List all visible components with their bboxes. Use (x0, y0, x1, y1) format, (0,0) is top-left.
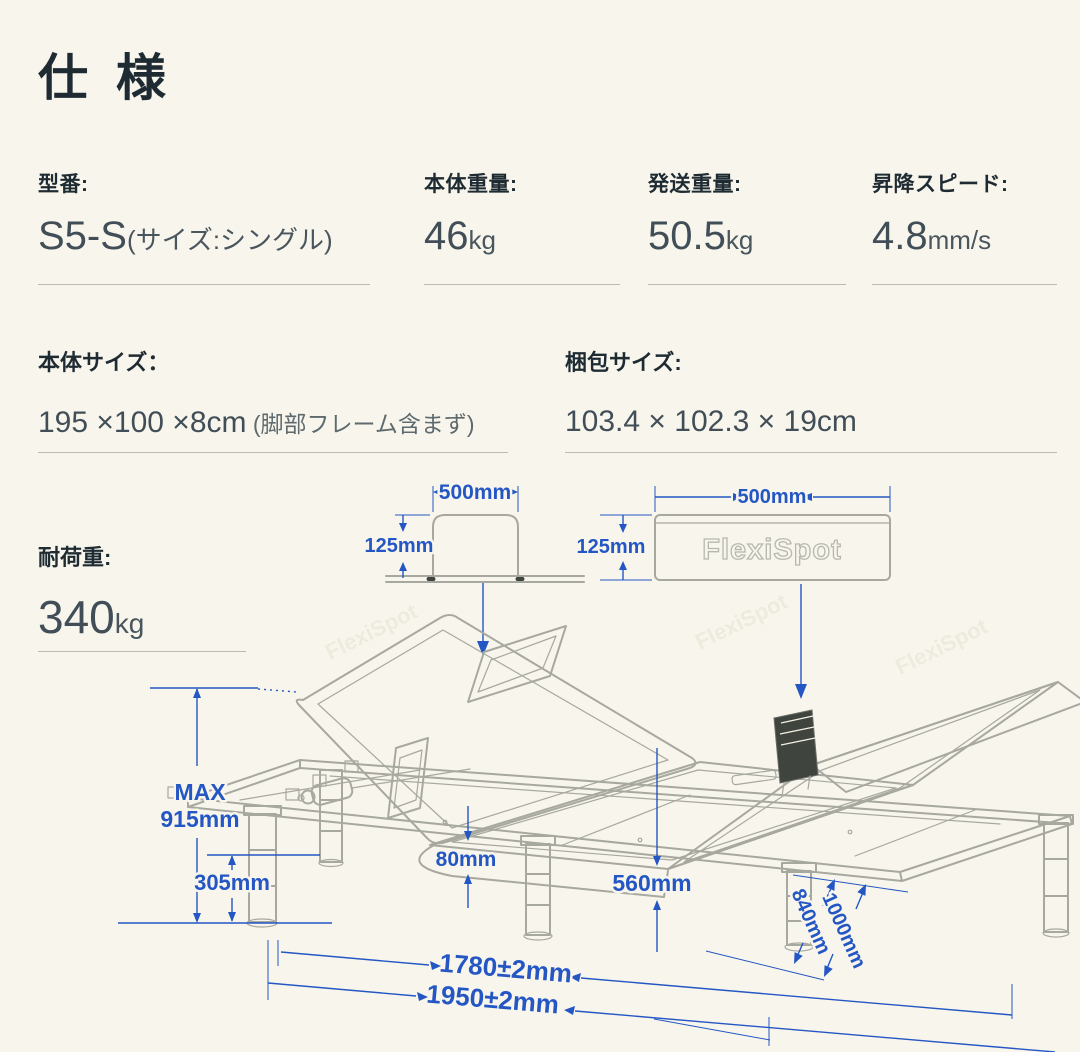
bed-dimensions: MAX 915mm 305mm 80mm 560mm 1780±2mm (118, 688, 1055, 1052)
svg-text:FlexiSpot: FlexiSpot (691, 588, 792, 654)
max-height-dim-2: 915mm (160, 806, 239, 832)
box-height-dim: 125mm (577, 536, 646, 558)
spec-package-size-value: 103.4 × 102.3 × 19cm (565, 405, 857, 439)
bracket-width-dim: 500mm (439, 481, 511, 504)
spec-sheet: 仕 様 型番: S5-S(サイズ:シングル) 本体重量: 46kg 発送重量: … (0, 0, 1080, 1052)
divider (648, 284, 846, 285)
spec-ship-weight: 発送重量: 50.5kg (648, 168, 753, 259)
spec-package-size-label: 梱包サイズ: (565, 345, 857, 377)
spec-net-weight: 本体重量: 46kg (424, 168, 518, 259)
package-box-drawing: FlexiSpot (655, 515, 890, 580)
spec-net-weight-label: 本体重量: (424, 168, 518, 198)
page-title: 仕 様 (38, 38, 173, 110)
bracket-height-dim: 125mm (365, 535, 434, 557)
bed-dimension-diagram: FlexiSpot FlexiSpot FlexiSpot 500mm 125m… (0, 470, 1080, 1052)
divider (565, 452, 1057, 453)
box-width-dim: 500mm (738, 486, 807, 508)
spec-lift-speed-value: 4.8mm/s (872, 214, 1009, 259)
spec-ship-weight-value: 50.5kg (648, 214, 753, 259)
package-box-brand: FlexiSpot (702, 534, 842, 566)
spec-package-size: 梱包サイズ: 103.4 × 102.3 × 19cm (565, 345, 857, 439)
spec-net-weight-value: 46kg (424, 214, 518, 259)
max-height-dim-1: MAX (174, 779, 226, 805)
frame-thickness-dim: 80mm (436, 848, 497, 871)
spec-ship-weight-label: 発送重量: (648, 168, 753, 198)
bed-line-art (168, 615, 1080, 951)
divider (872, 284, 1057, 285)
under-clearance-dim: 560mm (612, 870, 691, 896)
divider (38, 452, 508, 453)
watermark: FlexiSpot FlexiSpot FlexiSpot (321, 588, 992, 679)
svg-text:FlexiSpot: FlexiSpot (321, 598, 422, 664)
spec-body-size-label: 本体サイズ： (38, 345, 475, 377)
remote-control (732, 770, 777, 785)
remote-pocket (774, 710, 818, 796)
divider (38, 284, 370, 285)
spec-model: 型番: S5-S(サイズ:シングル) (38, 168, 333, 259)
spec-body-size: 本体サイズ： 195 ×100 ×8cm (脚部フレーム含まず) (38, 345, 475, 440)
svg-text:FlexiSpot: FlexiSpot (891, 613, 992, 679)
spec-lift-speed-label: 昇降スピード: (872, 168, 1009, 198)
divider (424, 284, 620, 285)
package-box-dimensions: 500mm 125mm (577, 486, 890, 699)
spec-body-size-value: 195 ×100 ×8cm (脚部フレーム含まず) (38, 405, 475, 440)
spec-lift-speed: 昇降スピード: 4.8mm/s (872, 168, 1009, 259)
leg-height-dim: 305mm (194, 870, 270, 895)
spec-model-value: S5-S(サイズ:シングル) (38, 214, 333, 259)
spec-model-label: 型番: (38, 168, 333, 198)
